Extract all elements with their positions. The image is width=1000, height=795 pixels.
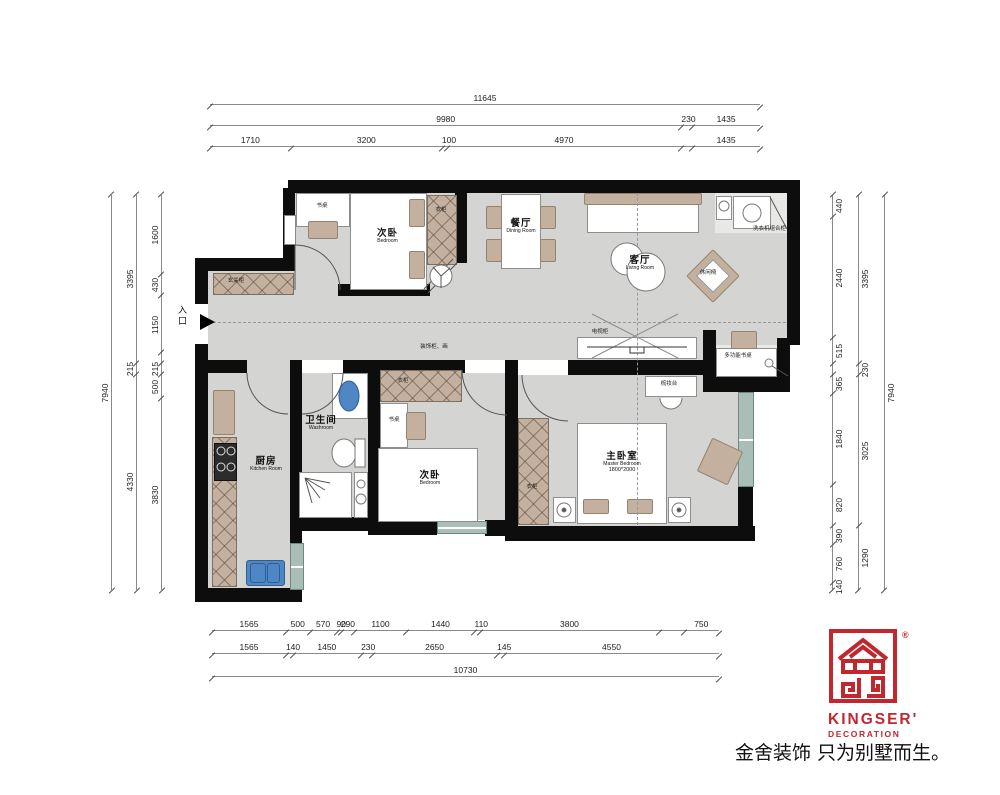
window <box>284 215 296 245</box>
wall <box>368 520 437 535</box>
dimension-segment: 760 <box>832 545 845 583</box>
dimension-segment: 820 <box>832 485 845 526</box>
registered-mark: ® <box>902 630 909 640</box>
dimension-segment: 145 <box>497 641 504 654</box>
company-tagline: 金舍装饰 只为别墅而生。 <box>735 738 990 765</box>
label-lounge-chair: 休闲椅 <box>696 271 720 277</box>
label-laundry-cabinet: 洗衣机组合柜 <box>742 227 786 233</box>
dimension-row-bottom: 1565140145023026501454550 <box>212 641 719 654</box>
dining-chair <box>540 239 556 262</box>
dimension-segment: 2440 <box>832 217 845 338</box>
dimension-row-top: 11645 <box>210 92 760 105</box>
dimension-row-top: 99802301435 <box>210 113 760 126</box>
label-entry-cabinet: 玄关柜 <box>222 279 250 285</box>
logo-brand-text: KINGSER' <box>828 711 988 729</box>
room-label-master: 主卧室 Master Bedroom 1800*2000 <box>587 452 657 474</box>
dimension-segment: 290 <box>341 618 355 631</box>
dimension-segment: 230 <box>361 641 372 654</box>
kitchen-sink-basin <box>267 563 280 583</box>
dimension-segment: 3800 <box>480 618 660 631</box>
wall <box>290 360 302 373</box>
room-label-washroom: 卫生间 Washroom <box>292 416 350 432</box>
kitchen-sink-basin <box>250 563 266 583</box>
shower <box>299 472 352 518</box>
wall <box>195 258 208 304</box>
chair <box>406 412 426 440</box>
company-logo: ® KINGSER' DECORATION <box>828 628 988 739</box>
label-desk: 书桌 <box>312 204 332 210</box>
dimension-segment: 1290 <box>858 526 871 590</box>
wall <box>288 180 800 193</box>
window <box>437 521 487 534</box>
dimension-segment: 1435 <box>692 134 760 147</box>
washbasin-counter <box>332 373 368 419</box>
dimension-segment: 140 <box>286 641 293 654</box>
chair <box>308 221 338 239</box>
pillow <box>583 499 609 514</box>
dimension-segment: 750 <box>684 618 719 631</box>
dimension-segment: 1440 <box>406 618 474 631</box>
dimension-segment <box>659 618 683 631</box>
dimension-segment: 7940 <box>884 195 897 590</box>
fridge <box>213 390 235 435</box>
entry-arrow-icon <box>200 314 215 330</box>
dimension-segment: 11645 <box>210 92 760 105</box>
dimension-segment: 500 <box>149 375 162 400</box>
room-label-bedroom-bottom: 次卧 Bedroom <box>400 471 460 487</box>
dimension-segment: 1150 <box>149 296 162 353</box>
label-wardrobe: 衣柜 <box>523 485 541 491</box>
dimension-row-bottom: 156550057090290110014401103800750 <box>212 618 719 631</box>
dimension-segment <box>681 134 692 147</box>
dimension-segment: 1840 <box>832 394 845 486</box>
label-wardrobe: 衣柜 <box>432 208 450 214</box>
wall <box>738 485 753 530</box>
dimension-segment: 230 <box>681 113 692 126</box>
wall <box>568 360 710 375</box>
label-wardrobe: 衣柜 <box>394 379 412 385</box>
dimension-col-left: 160043011502155003830 <box>149 195 162 590</box>
window <box>738 392 754 487</box>
dimension-col-left: 33952154330 <box>124 195 137 590</box>
dimension-segment: 10730 <box>212 664 719 677</box>
wardrobe <box>427 195 457 265</box>
window <box>290 543 304 590</box>
dimension-segment: 1710 <box>210 134 291 147</box>
laundry-cabinet <box>716 196 732 220</box>
dimension-segment: 3200 <box>291 134 442 147</box>
dimension-row-bottom: 10730 <box>212 664 719 677</box>
dimension-segment: 3395 <box>124 195 137 364</box>
pillow <box>409 251 425 279</box>
dimension-segment: 1600 <box>149 195 162 275</box>
dimension-segment: 1100 <box>354 618 406 631</box>
dimension-col-right: 7940 <box>884 195 897 590</box>
wall <box>485 520 505 536</box>
wall <box>777 338 790 392</box>
label-multi-desk: 多功能书桌 <box>718 354 758 360</box>
dimension-segment: 1435 <box>692 113 760 126</box>
center-line <box>208 322 786 323</box>
stove <box>214 443 237 481</box>
wall <box>195 344 208 602</box>
floorplan-canvas: 次卧 Bedroom 餐厅 Dining Room 客厅 Living Room… <box>0 0 1000 795</box>
center-line <box>637 193 638 525</box>
dimension-col-right: 339523030251290 <box>858 195 871 590</box>
wall <box>195 258 295 271</box>
sofa <box>587 204 699 233</box>
dimension-segment: 570 <box>310 618 337 631</box>
entry-label: 入口 <box>176 305 189 327</box>
dimension-segment: 1565 <box>212 618 286 631</box>
dimension-segment: 430 <box>149 275 162 296</box>
washing-machine <box>733 196 771 229</box>
dimension-col-left: 7940 <box>99 195 112 590</box>
room-label-dining: 餐厅 Dining Room <box>491 219 551 235</box>
chair <box>731 331 757 349</box>
label-tv-cabinet: 电视柜 <box>588 330 612 336</box>
wall <box>208 360 247 373</box>
label-hall-note: 装饰柜、画 <box>412 345 456 351</box>
wardrobe <box>380 370 462 402</box>
dimension-segment: 4550 <box>504 641 719 654</box>
wall <box>505 360 518 528</box>
dimension-row-top: 1710320010049701435 <box>210 134 760 147</box>
room-label-living: 客厅 Living Room <box>610 256 670 272</box>
label-dresser: 梳妆台 <box>657 382 681 388</box>
dimension-segment: 3025 <box>858 375 871 525</box>
dimension-segment: 3395 <box>858 195 871 364</box>
wardrobe <box>518 418 549 525</box>
dimension-segment: 9980 <box>210 113 681 126</box>
washroom-unit <box>354 472 368 518</box>
dimension-segment: 500 <box>286 618 310 631</box>
wall <box>787 180 800 345</box>
nightstand <box>553 497 576 523</box>
dimension-segment: 3830 <box>149 399 162 590</box>
dining-chair <box>486 239 502 262</box>
wall <box>195 588 302 602</box>
room-label-bedroom-top: 次卧 Bedroom <box>355 229 420 245</box>
sofa-back <box>584 193 702 205</box>
dimension-segment: 4330 <box>124 375 137 590</box>
dimension-col-right: 44024405153651840820390760140 <box>832 195 845 590</box>
pillow <box>627 499 653 514</box>
dimension-segment: 7940 <box>99 195 112 590</box>
wall <box>505 526 755 541</box>
pillow <box>409 199 425 227</box>
label-desk: 书桌 <box>384 418 404 424</box>
dimension-segment: 1450 <box>293 641 362 654</box>
dimension-segment: 1565 <box>212 641 286 654</box>
desk <box>380 403 408 448</box>
room-label-kitchen: 厨房 Kitchen Room <box>236 457 296 473</box>
logo-mark-icon <box>828 628 898 704</box>
nightstand <box>668 497 691 523</box>
dimension-segment: 4970 <box>447 134 682 147</box>
dimension-segment: 2650 <box>372 641 497 654</box>
